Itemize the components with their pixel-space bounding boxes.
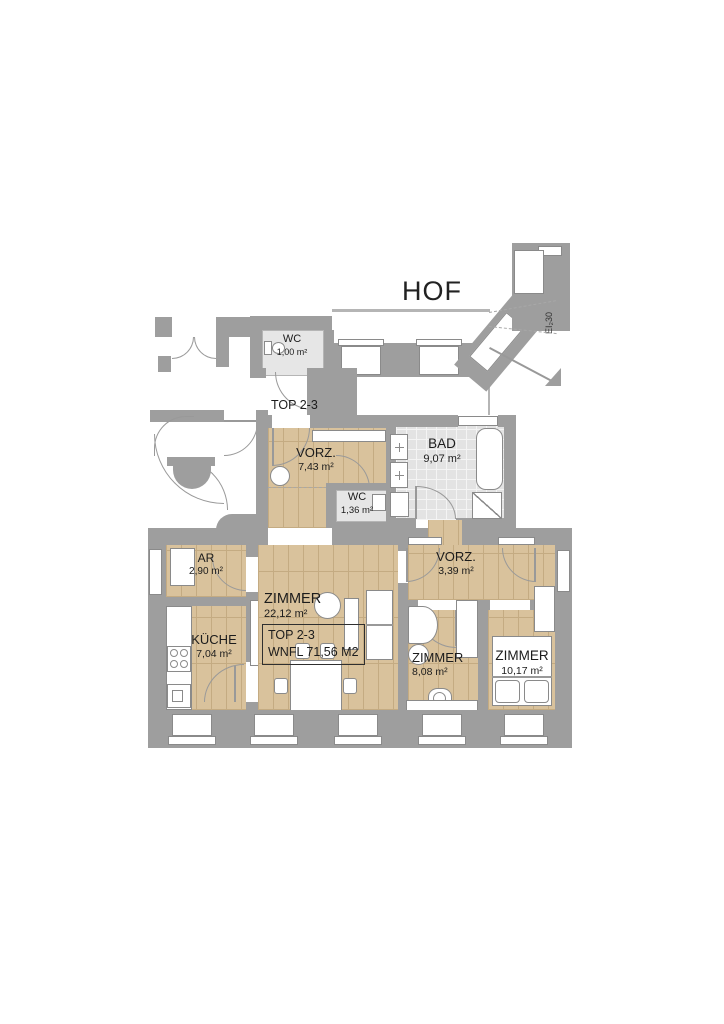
wall: [504, 415, 516, 528]
room-area: 7,43 m²: [284, 461, 348, 474]
door-swing-arc: [194, 337, 216, 359]
room-label-zimmer-2: ZIMMER 8,08 m²: [412, 650, 463, 679]
window: [338, 339, 384, 346]
window-sill: [250, 736, 298, 745]
room-name: KÜCHE: [186, 632, 242, 648]
window-sill: [168, 736, 216, 745]
door-opening: [498, 537, 535, 545]
room-name: WC: [332, 491, 382, 505]
shower: [472, 492, 502, 519]
room-name: ZIMMER: [412, 650, 463, 666]
window: [416, 339, 462, 346]
room-label-wc-2: WC 1,36 m²: [332, 491, 382, 517]
window: [514, 250, 544, 294]
room-label-vorz-2: VORZ. 3,39 m²: [428, 549, 484, 578]
corridor-edge-line: [332, 309, 490, 312]
open-passage-line: [268, 487, 332, 489]
room-label-bad: BAD 9,07 m²: [412, 436, 472, 467]
wall: [158, 356, 171, 372]
room-name: ZIMMER: [264, 590, 321, 608]
window: [338, 714, 378, 736]
room-name: BAD: [412, 436, 472, 453]
room-name: WC: [268, 333, 316, 347]
window: [504, 714, 544, 736]
room-area: 3,39 m²: [428, 565, 484, 578]
room-label-ar: AR 2,90 m²: [184, 551, 228, 579]
stair-landing-wall: [167, 457, 215, 466]
wall: [310, 415, 398, 428]
wall: [250, 316, 262, 376]
window-sill: [418, 736, 466, 745]
room-label-wc-top: WC 1,00 m²: [268, 333, 316, 358]
room-label-kueche: KÜCHE 7,04 m²: [186, 632, 242, 661]
wall: [216, 337, 229, 367]
wall: [268, 415, 272, 428]
door-opening: [408, 537, 442, 545]
room-area: 22,12 m²: [264, 608, 321, 622]
fire-rating-label: EI₂30: [544, 282, 554, 334]
window: [458, 416, 498, 426]
wall: [250, 368, 266, 378]
door-swing-arc: [224, 422, 258, 456]
wardrobe: [534, 586, 555, 632]
wall: [256, 410, 268, 528]
room-label-zimmer-1: ZIMMER 22,12 m²: [264, 590, 321, 622]
stove-burner: [170, 649, 178, 657]
wall: [250, 316, 332, 330]
floor-plan: HOF WC 1,00 m² EI₂30: [0, 0, 724, 1024]
sink: [390, 434, 408, 460]
window: [254, 714, 294, 736]
room-label-vorz-1: VORZ. 7,43 m²: [284, 445, 348, 474]
room-name: VORZ.: [284, 445, 348, 461]
door-swing-arc: [172, 337, 194, 359]
chair: [274, 678, 288, 694]
room-label-zimmer-3: ZIMMER 10,17 m²: [494, 648, 550, 678]
unit-label: TOP 2-3: [271, 398, 318, 412]
window: [422, 714, 462, 736]
wall: [166, 597, 246, 606]
room-area: 9,07 m²: [412, 453, 472, 467]
room-area: 7,04 m²: [186, 648, 242, 661]
pillow: [495, 680, 520, 703]
wall: [396, 415, 458, 427]
window: [419, 346, 459, 375]
room-area: 10,17 m²: [494, 665, 550, 678]
room-name: AR: [184, 551, 228, 566]
room-floor-vorz-1: [268, 488, 332, 528]
kitchen-sink-basin: [172, 690, 183, 702]
window: [149, 549, 162, 595]
window-sill: [334, 736, 382, 745]
window-sill: [500, 736, 548, 745]
washing-machine: [390, 492, 409, 517]
wall: [456, 518, 506, 528]
room-name: VORZ.: [428, 549, 484, 565]
stove-burner: [170, 660, 178, 668]
room-name: ZIMMER: [494, 648, 550, 665]
room-area: 2,90 m²: [184, 566, 228, 579]
unit-info-line1: TOP 2-3: [268, 627, 359, 644]
sofa-seam: [366, 624, 393, 626]
armchair: [408, 606, 438, 644]
unit-info-box: TOP 2-3 WNFL 71,56 M2: [262, 624, 365, 665]
wall: [155, 317, 172, 337]
wall: [148, 528, 268, 545]
room-area: 1,36 m²: [332, 505, 382, 517]
room-area: 1,00 m²: [268, 347, 316, 358]
sink: [390, 462, 408, 488]
courtyard-label: HOF: [402, 276, 462, 307]
window: [172, 714, 212, 736]
chair: [343, 678, 357, 694]
pillow: [524, 680, 549, 703]
window: [557, 550, 570, 592]
wardrobe: [312, 430, 386, 442]
room-area: 8,08 m²: [412, 666, 463, 679]
bathtub: [476, 428, 503, 490]
wall: [246, 545, 258, 557]
unit-info-line2: WNFL 71,56 M2: [268, 644, 359, 661]
wall: [396, 518, 416, 528]
dining-table: [290, 660, 342, 712]
